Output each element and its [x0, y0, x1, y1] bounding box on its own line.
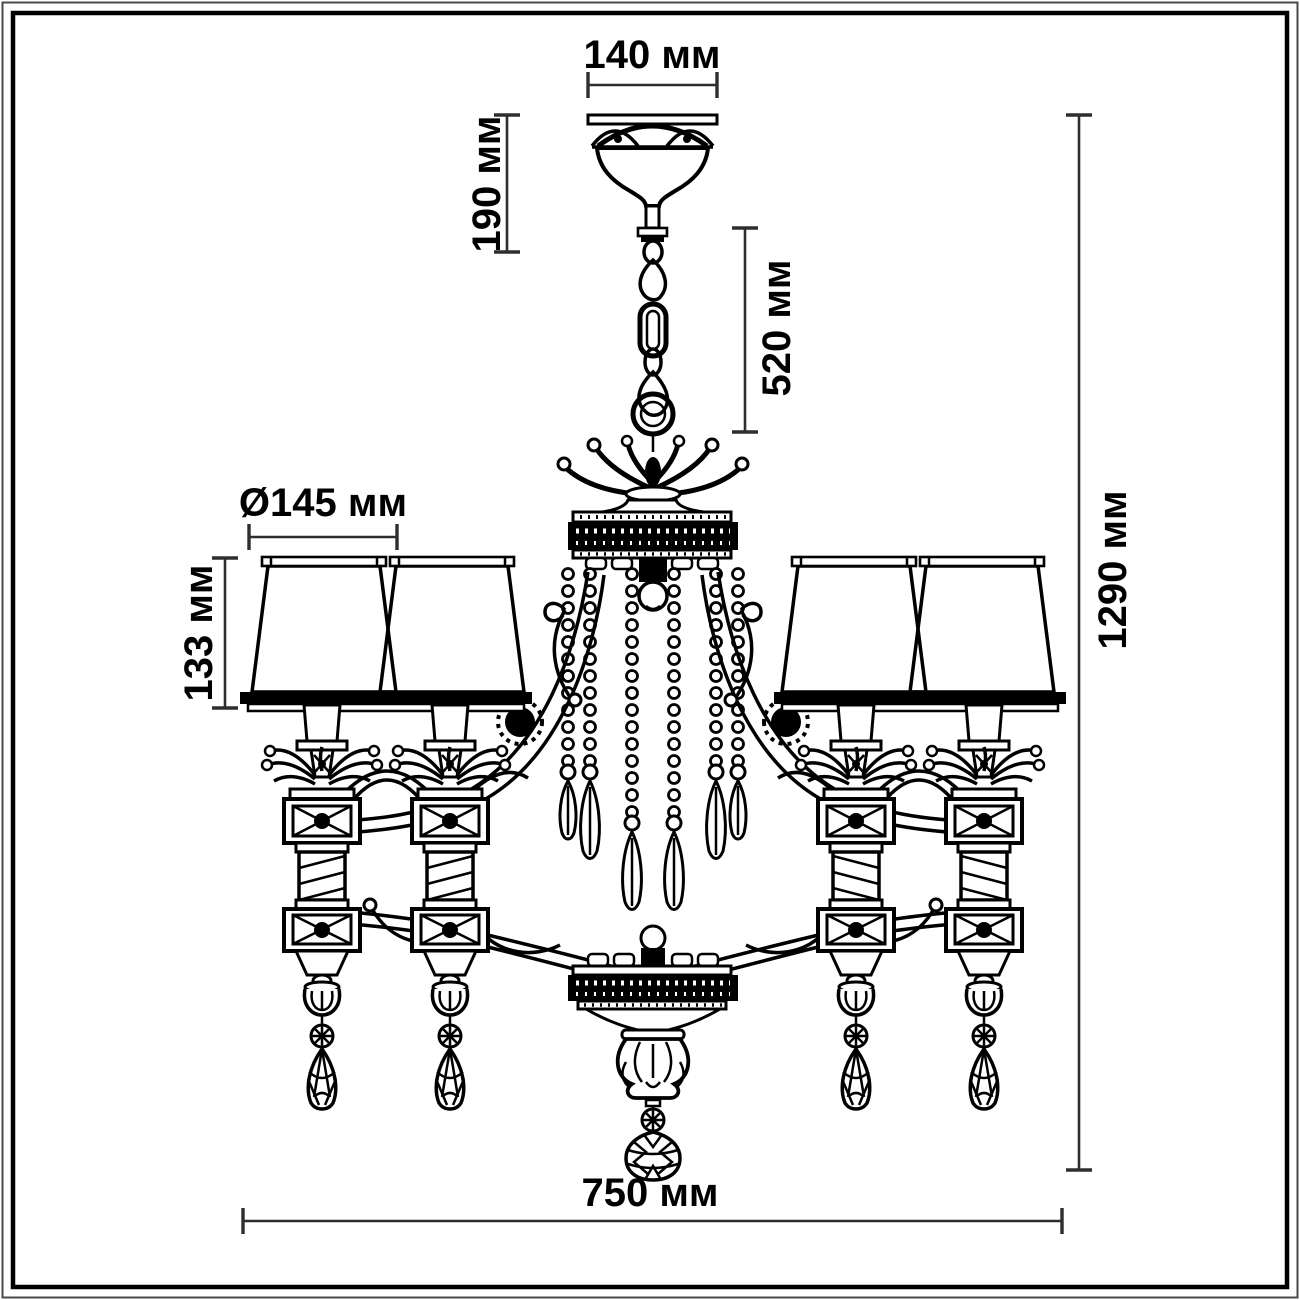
- suspension-chain: [633, 228, 673, 434]
- dim-total-height-label: 1290 мм: [1091, 490, 1135, 649]
- dim-shade-diameter-label: Ø145 мм: [239, 481, 407, 525]
- dim-canopy-height-label: 190 мм: [465, 115, 509, 252]
- dim-canopy-width-label: 140 мм: [583, 33, 720, 77]
- dim-shade-diameter: Ø145 мм: [239, 481, 407, 550]
- ceiling-canopy: [588, 115, 717, 228]
- top-leaf-crown: [558, 432, 748, 512]
- dim-chain-drop-label: 520 мм: [755, 259, 799, 396]
- dim-shade-height-label: 133 мм: [177, 564, 221, 701]
- dim-shade-height: 133 мм: [177, 558, 238, 708]
- dim-canopy-width: 140 мм: [583, 33, 720, 98]
- technical-drawing-page: 140 мм 190 мм 520 мм Ø145 мм 133 мм 1290…: [0, 0, 1300, 1300]
- bottom-finial: [618, 1039, 689, 1180]
- dim-total-width-label: 750 мм: [581, 1171, 718, 1215]
- bead-strands: [560, 569, 746, 910]
- dim-total-width: 750 мм: [243, 1171, 1062, 1234]
- chandelier-drawing: [240, 115, 1066, 1180]
- dim-canopy-height: 190 мм: [465, 115, 520, 253]
- dim-total-height: 1290 мм: [1066, 115, 1135, 1170]
- chandelier-dimension-drawing: 140 мм 190 мм 520 мм Ø145 мм 133 мм 1290…: [0, 0, 1300, 1300]
- dim-chain-drop: 520 мм: [732, 228, 799, 432]
- lower-crystal-drum: [568, 926, 738, 1039]
